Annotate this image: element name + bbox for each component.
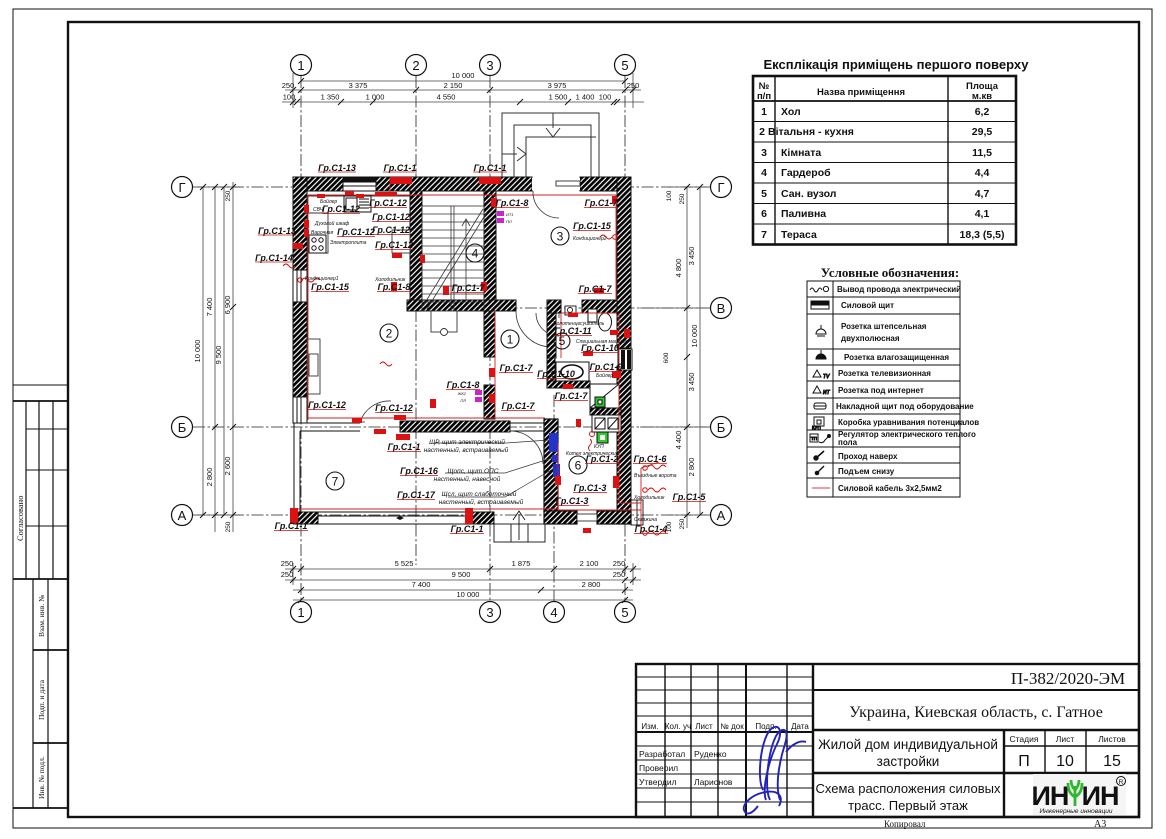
svg-text:2: 2 <box>386 327 393 341</box>
svg-text:Гр.С1-7: Гр.С1-7 <box>585 198 619 208</box>
svg-text:600: 600 <box>663 352 670 363</box>
svg-text:настенный, навесной: настенный, навесной <box>434 475 501 483</box>
svg-text:Схема расположения силовых: Схема расположения силовых <box>815 781 1001 796</box>
svg-text:250: 250 <box>282 81 295 90</box>
svg-text:3: 3 <box>761 147 767 159</box>
svg-text:5: 5 <box>621 58 628 73</box>
svg-text:Гр.С1-3: Гр.С1-3 <box>574 483 607 493</box>
svg-text:Ларионов: Ларионов <box>694 777 733 787</box>
svg-text:Хол: Хол <box>781 106 801 118</box>
svg-text:9 500: 9 500 <box>214 346 223 365</box>
svg-text:Гр.С1-14: Гр.С1-14 <box>255 253 293 263</box>
svg-text:3: 3 <box>486 605 493 620</box>
svg-text:Розетка под интернет: Розетка под интернет <box>838 386 924 395</box>
svg-text:Гр.С1-9: Гр.С1-9 <box>590 362 623 372</box>
svg-text:Гр.С1-8: Гр.С1-8 <box>496 198 529 208</box>
svg-text:250: 250 <box>613 570 626 579</box>
svg-text:Руденко: Руденко <box>694 749 727 759</box>
svg-text:7 400: 7 400 <box>205 298 214 317</box>
svg-text:6: 6 <box>575 459 582 473</box>
svg-text:5: 5 <box>621 605 628 620</box>
svg-text:Гр.С1-12: Гр.С1-12 <box>372 225 410 235</box>
svg-text:Дата: Дата <box>791 722 809 731</box>
svg-text:Лист: Лист <box>1056 734 1075 744</box>
svg-text:Гр.С1-8: Гр.С1-8 <box>447 380 480 390</box>
svg-text:ТП: ТП <box>811 436 817 441</box>
svg-text:Стадия: Стадия <box>1010 734 1039 744</box>
svg-text:18,3 (5,5): 18,3 (5,5) <box>960 229 1005 241</box>
svg-text:Паливна: Паливна <box>781 208 826 220</box>
svg-text:2 100: 2 100 <box>580 559 599 568</box>
svg-text:Сан. вузол: Сан. вузол <box>781 188 836 200</box>
svg-text:4,1: 4,1 <box>975 208 990 220</box>
svg-text:Коробка уравнивания потенциало: Коробка уравнивания потенциалов <box>838 418 979 427</box>
svg-text:Кондиционер2: Кондиционер2 <box>573 236 607 242</box>
svg-text:4 800: 4 800 <box>674 259 683 278</box>
svg-text:1: 1 <box>761 106 767 118</box>
svg-text:1 400: 1 400 <box>576 93 595 102</box>
svg-text:2 800: 2 800 <box>687 458 696 477</box>
svg-text:Гр.С1-5: Гр.С1-5 <box>673 492 707 502</box>
svg-text:250: 250 <box>281 559 294 568</box>
svg-text:11,5: 11,5 <box>972 147 992 159</box>
svg-text:Силовой щит: Силовой щит <box>841 301 894 310</box>
svg-text:м.кв: м.кв <box>972 91 992 102</box>
svg-text:250: 250 <box>627 81 640 90</box>
svg-text:5: 5 <box>559 334 566 348</box>
svg-text:Гр.С1-16: Гр.С1-16 <box>400 466 439 476</box>
svg-text:3: 3 <box>486 58 493 73</box>
svg-text:2: 2 <box>759 126 765 138</box>
svg-text:Гр.С1-7: Гр.С1-7 <box>452 283 486 293</box>
svg-text:3: 3 <box>557 230 564 244</box>
svg-text:Жилой дом индивидуальной: Жилой дом индивидуальной <box>818 737 998 752</box>
svg-text:Согласовано: Согласовано <box>15 496 25 541</box>
svg-text:Гр.С1-1: Гр.С1-1 <box>388 442 421 452</box>
svg-text:п/п: п/п <box>757 91 771 102</box>
svg-text:6 900: 6 900 <box>223 296 232 315</box>
svg-text:Инженерные инновации: Инженерные инновации <box>1039 808 1112 815</box>
svg-text:А: А <box>178 508 187 523</box>
svg-text:Подп. и дата: Подп. и дата <box>37 679 46 720</box>
svg-text:Утвердил: Утвердил <box>639 777 677 787</box>
svg-text:Инв. № подл.: Инв. № подл. <box>37 756 46 799</box>
svg-text:Вітальня - кухня: Вітальня - кухня <box>768 126 854 138</box>
svg-text:Г: Г <box>178 180 185 195</box>
svg-text:Листов: Листов <box>1098 734 1126 744</box>
svg-text:2: 2 <box>412 58 419 73</box>
svg-text:7: 7 <box>332 475 339 489</box>
svg-text:10 000: 10 000 <box>457 590 480 599</box>
svg-text:TV: TV <box>823 374 830 380</box>
svg-text:Гр.С1-15: Гр.С1-15 <box>311 282 350 292</box>
svg-text:7 400: 7 400 <box>412 580 431 589</box>
svg-text:3 450: 3 450 <box>687 247 696 266</box>
svg-text:Лист: Лист <box>695 722 713 731</box>
svg-text:Кімната: Кімната <box>781 147 821 159</box>
svg-text:Гр.С1-4: Гр.С1-4 <box>635 524 668 534</box>
svg-text:Накладной щит под оборудование: Накладной щит под оборудование <box>836 402 974 411</box>
svg-text:4 400: 4 400 <box>674 431 683 450</box>
svg-text:ПЛ: ПЛ <box>506 219 512 224</box>
svg-text:100: 100 <box>666 190 673 201</box>
svg-text:Духовой шкаф: Духовой шкаф <box>314 220 350 227</box>
svg-text:СВЧ: СВЧ <box>313 207 324 213</box>
svg-text:Бойлер: Бойлер <box>320 198 337 205</box>
svg-text:Гр.С1-1: Гр.С1-1 <box>384 163 417 173</box>
svg-text:Полотенцесушитель: Полотенцесушитель <box>553 321 605 327</box>
svg-text:7: 7 <box>761 229 767 241</box>
svg-text:ПЛ: ПЛ <box>460 398 466 403</box>
svg-text:Гр.С1-12: Гр.С1-12 <box>372 212 410 222</box>
svg-text:Гр.С1-15: Гр.С1-15 <box>573 221 612 231</box>
svg-text:В: В <box>717 301 726 316</box>
svg-text:1: 1 <box>297 605 304 620</box>
svg-text:3 975: 3 975 <box>548 81 567 90</box>
svg-text:Электроплита: Электроплита <box>330 240 367 246</box>
svg-text:Разработал: Разработал <box>639 749 685 759</box>
svg-text:Варочная: Варочная <box>311 230 334 236</box>
svg-text:ЖК2: ЖК2 <box>457 391 467 396</box>
svg-text:5 525: 5 525 <box>395 559 414 568</box>
svg-text:1 000: 1 000 <box>366 93 385 102</box>
svg-text:двухполюсная: двухполюсная <box>841 334 900 343</box>
svg-text:Гр.С1-7: Гр.С1-7 <box>502 401 536 411</box>
svg-text:R: R <box>1119 779 1124 786</box>
svg-text:Г: Г <box>717 180 724 195</box>
svg-text:2 150: 2 150 <box>444 81 463 90</box>
svg-text:3 450: 3 450 <box>687 373 696 392</box>
svg-text:2 800: 2 800 <box>205 468 214 487</box>
svg-text:Гр.С1-8: Гр.С1-8 <box>378 282 411 292</box>
svg-text:250: 250 <box>225 190 232 201</box>
svg-text:Гр.С1-1: Гр.С1-1 <box>275 521 308 531</box>
svg-text:Гр.С1-12: Гр.С1-12 <box>375 403 413 413</box>
svg-text:ИТ1: ИТ1 <box>506 212 514 217</box>
svg-text:2 600: 2 600 <box>223 457 232 476</box>
svg-text:застройки: застройки <box>877 754 940 769</box>
svg-text:5: 5 <box>761 188 767 200</box>
svg-text:настенный, встраиваемый: настенный, встраиваемый <box>439 498 524 506</box>
svg-text:Изм.: Изм. <box>641 722 658 731</box>
svg-text:Гр.С1-12: Гр.С1-12 <box>369 198 407 208</box>
svg-text:Гр.С1-12: Гр.С1-12 <box>322 204 360 214</box>
svg-text:4 550: 4 550 <box>437 93 456 102</box>
svg-text:Гр.С1-7: Гр.С1-7 <box>555 391 589 401</box>
svg-text:Бойлер: Бойлер <box>596 372 613 379</box>
svg-text:Розетка телевизионная: Розетка телевизионная <box>838 369 931 378</box>
svg-text:КУП: КУП <box>594 444 604 450</box>
svg-text:1: 1 <box>297 58 304 73</box>
svg-text:Гр.С1-1: Гр.С1-1 <box>474 163 507 173</box>
svg-text:Силовой кабель 3х2,5мм2: Силовой кабель 3х2,5мм2 <box>838 484 942 493</box>
svg-text:П-382/2020-ЭМ: П-382/2020-ЭМ <box>1011 669 1125 688</box>
svg-text:4: 4 <box>472 247 479 261</box>
svg-text:Копировал: Копировал <box>884 819 926 829</box>
svg-text:Гр.С1-10: Гр.С1-10 <box>537 369 575 379</box>
svg-text:Регулятор электрического тепло: Регулятор электрического теплого <box>838 430 976 439</box>
svg-text:Тераса: Тераса <box>781 229 817 241</box>
svg-text:250: 250 <box>613 559 626 568</box>
svg-text:250: 250 <box>225 521 232 532</box>
svg-text:Холодильник: Холодильник <box>374 277 406 283</box>
svg-text:КУП: КУП <box>812 425 821 430</box>
svg-text:А: А <box>717 508 726 523</box>
svg-text:1: 1 <box>507 333 514 347</box>
svg-text:100: 100 <box>599 93 612 102</box>
svg-text:4,7: 4,7 <box>975 188 990 200</box>
svg-text:П: П <box>1018 753 1030 770</box>
svg-text:Гр.С1-13: Гр.С1-13 <box>258 226 296 236</box>
svg-text:Гр.С1-3: Гр.С1-3 <box>556 496 589 506</box>
svg-text:4,4: 4,4 <box>975 167 990 179</box>
svg-text:10: 10 <box>1056 753 1074 770</box>
svg-text:10 000: 10 000 <box>193 340 202 363</box>
svg-text:4: 4 <box>550 605 557 620</box>
svg-text:Гр.С1-11: Гр.С1-11 <box>554 326 591 336</box>
svg-text:СУП: СУП <box>595 407 605 412</box>
svg-text:1 350: 1 350 <box>321 93 340 102</box>
svg-text:6: 6 <box>761 208 767 220</box>
svg-text:6,2: 6,2 <box>975 106 990 118</box>
svg-text:Кол. уч: Кол. уч <box>665 722 691 731</box>
svg-text:Гр.С1-7: Гр.С1-7 <box>500 363 534 373</box>
svg-text:Гр.С1-13: Гр.С1-13 <box>318 163 356 173</box>
svg-text:Въездные ворота: Въездные ворота <box>634 473 677 479</box>
svg-text:ЩР, щит электрический: ЩР, щит электрический <box>429 438 505 446</box>
svg-text:Гр.С1-12: Гр.С1-12 <box>375 240 413 250</box>
svg-text:пола: пола <box>838 438 858 447</box>
svg-text:Специальная машина: Специальная машина <box>576 339 627 345</box>
svg-text:Гр.С1-12: Гр.С1-12 <box>308 400 346 410</box>
svg-text:Подъем снизу: Подъем снизу <box>838 467 895 476</box>
svg-text:1 875: 1 875 <box>512 559 531 568</box>
svg-text:10 000: 10 000 <box>452 71 475 80</box>
svg-text:Експлікація приміщень першого: Експлікація приміщень першого поверху <box>764 57 1030 72</box>
svg-text:Б: Б <box>717 420 726 435</box>
svg-text:250: 250 <box>281 570 294 579</box>
svg-text:4: 4 <box>761 167 767 179</box>
svg-text:15: 15 <box>1103 753 1121 770</box>
svg-text:9 500: 9 500 <box>452 570 471 579</box>
svg-text:Холодильник: Холодильник <box>633 495 665 501</box>
svg-text:Назва приміщення: Назва приміщення <box>817 87 905 98</box>
svg-text:250: 250 <box>679 193 686 204</box>
svg-text:1 500: 1 500 <box>549 93 568 102</box>
svg-text:Щсл, щит слаботочный: Щсл, щит слаботочный <box>442 490 517 498</box>
svg-text:ИТ: ИТ <box>823 390 831 396</box>
svg-text:10 000: 10 000 <box>690 325 699 348</box>
svg-text:А3: А3 <box>1094 819 1106 830</box>
svg-text:Гр.С1-6: Гр.С1-6 <box>634 454 668 464</box>
svg-text:Розетка влагозащищенная: Розетка влагозащищенная <box>844 353 949 362</box>
svg-text:Кондиционер1: Кондиционер1 <box>305 276 339 282</box>
svg-text:Гардероб: Гардероб <box>781 167 831 179</box>
svg-text:Проверил: Проверил <box>639 763 678 773</box>
svg-text:настенный, встраиваемый: настенный, встраиваемый <box>424 446 509 454</box>
svg-text:3 375: 3 375 <box>349 81 368 90</box>
svg-text:Щопс, щит ОПС: Щопс, щит ОПС <box>448 468 499 475</box>
svg-text:250: 250 <box>679 518 686 529</box>
svg-text:Котел электрический: Котел электрический <box>566 450 619 457</box>
svg-text:29,5: 29,5 <box>972 126 993 138</box>
svg-text:Вывод провода электрический: Вывод провода электрический <box>837 285 961 294</box>
svg-text:Скважина: Скважина <box>634 517 657 523</box>
svg-text:2 800: 2 800 <box>582 580 601 589</box>
svg-text:100: 100 <box>283 93 296 102</box>
svg-text:трасс. Первый этаж: трасс. Первый этаж <box>848 798 968 813</box>
svg-text:Гр.С1-1: Гр.С1-1 <box>451 524 484 534</box>
svg-text:Б: Б <box>178 420 187 435</box>
svg-text:Проход наверх: Проход наверх <box>838 452 898 461</box>
svg-text:Украина, Киевская область, с.: Украина, Киевская область, с. Гатное <box>849 704 1103 721</box>
svg-text:Гр.С1-12: Гр.С1-12 <box>337 227 375 237</box>
svg-text:Взам. инв. №: Взам. инв. № <box>37 595 46 637</box>
svg-text:Розетка штепсельная: Розетка штепсельная <box>841 322 927 331</box>
svg-text:Условные обозначения:: Условные обозначения: <box>821 265 960 280</box>
svg-text:Гр.С1-7: Гр.С1-7 <box>579 284 613 294</box>
svg-text:Гр.С1-17: Гр.С1-17 <box>397 490 436 500</box>
svg-text:№ док: № док <box>720 722 744 731</box>
